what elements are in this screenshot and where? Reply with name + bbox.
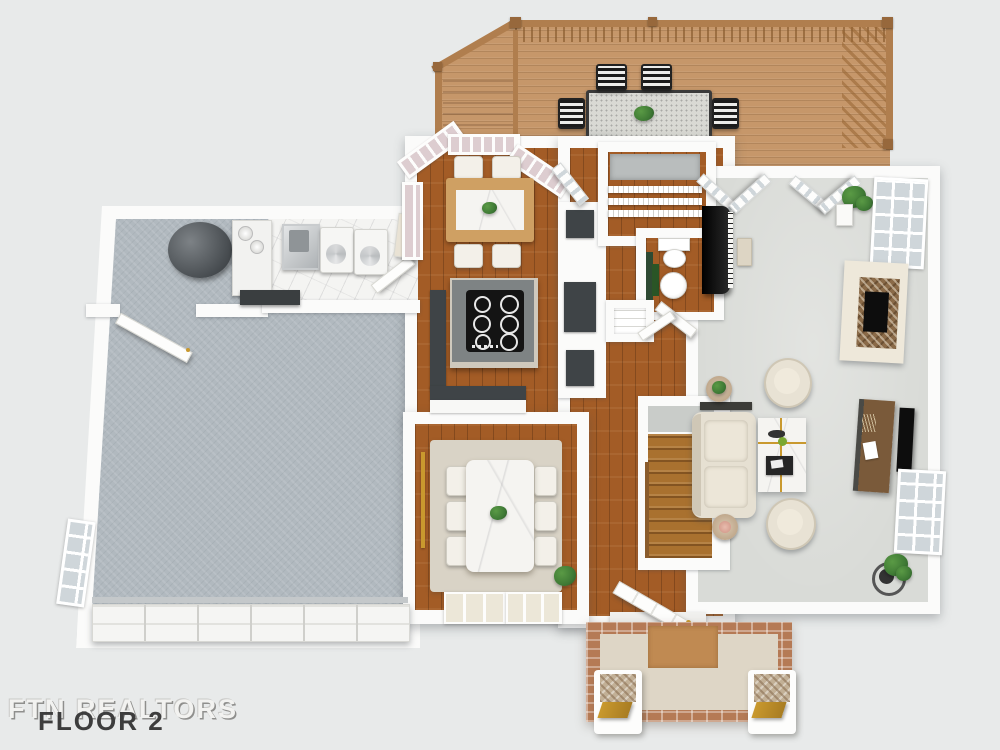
water-heater: [168, 222, 232, 278]
nook-chair: [454, 244, 483, 268]
deck-post: [882, 17, 893, 28]
burner: [474, 296, 491, 313]
burner: [473, 315, 491, 333]
deck-right-slat-shadow: [842, 27, 886, 148]
dining-window-seat: [444, 592, 506, 624]
paint-can: [238, 226, 253, 241]
garage-door: [92, 604, 410, 642]
pink-vase: [719, 521, 731, 533]
deck-post: [648, 17, 657, 26]
nook-chair: [454, 156, 483, 180]
cooktop-knobs: [472, 345, 498, 348]
deck-post: [883, 139, 893, 149]
door-handle: [186, 348, 190, 352]
dryer-lid: [360, 246, 380, 266]
coffee-table: [758, 418, 806, 492]
garage-divider-wall: [86, 304, 120, 317]
deck-railing-top: [515, 20, 887, 27]
pantry-upper-shelf: [610, 154, 700, 180]
sofa-cushion: [704, 420, 748, 462]
deck-post: [433, 62, 442, 71]
porch-column-post: [597, 702, 632, 718]
outdoor-chair: [558, 98, 585, 129]
burner: [500, 333, 518, 351]
outdoor-chair: [641, 64, 672, 91]
dining-chair: [534, 536, 557, 566]
nook-chair: [492, 244, 521, 268]
tall-cabinet: [566, 350, 594, 386]
dried-plant: [862, 414, 876, 432]
tall-cabinet: [566, 210, 594, 238]
porch-column-stone: [600, 674, 636, 702]
washer-lid: [326, 244, 346, 264]
living-window-lower: [894, 469, 946, 555]
powder-plant-wall: [652, 264, 659, 296]
piano-bench: [737, 238, 752, 266]
accent-chair-seat: [777, 509, 803, 535]
porch-column-stone: [754, 674, 790, 702]
refrigerator: [564, 282, 596, 332]
garage-door-track: [92, 597, 408, 603]
floor-lamp: [421, 452, 425, 548]
stair-handrail: [645, 462, 649, 558]
outdoor-chair: [712, 98, 739, 129]
kitchen-cabinet-face: [430, 400, 526, 413]
decor-apple: [778, 437, 787, 446]
burner: [500, 315, 519, 334]
pantry-wire-shelf: [608, 198, 702, 205]
nook-chair: [492, 156, 521, 180]
paint-can: [250, 240, 264, 254]
outdoor-chair: [596, 64, 627, 91]
sofa-cushion: [704, 466, 748, 508]
planter: [836, 204, 853, 226]
porch-mat: [648, 626, 718, 668]
pantry-wire-shelf: [608, 210, 702, 217]
piano: [702, 206, 730, 294]
burner: [500, 295, 519, 314]
dining-window-seat: [506, 592, 562, 624]
pedestal-sink: [660, 272, 687, 299]
kitchen-counter-bottom: [430, 386, 526, 400]
floorplan-render: FTN REALTORS FLOOR 2: [0, 0, 1000, 750]
firebox: [863, 291, 889, 332]
tray-cards: [771, 459, 784, 469]
piano-keys: [728, 212, 733, 288]
deck-stair-divider-rail: [513, 30, 518, 148]
kitchen-counter-left: [430, 290, 446, 390]
sofa-console-table: [700, 402, 752, 410]
accent-chair-seat: [774, 368, 800, 394]
deck-post: [510, 17, 521, 28]
console-card: [863, 441, 879, 460]
dining-chair: [534, 501, 557, 531]
toilet-bowl: [663, 249, 686, 268]
sofa-back: [692, 414, 701, 516]
nook-bay-window: [448, 134, 520, 155]
nook-bay-window: [402, 182, 423, 260]
deck-railing-balusters: [515, 27, 887, 42]
porch-column-post: [751, 702, 786, 718]
watermark-floor-label: FLOOR 2: [38, 706, 165, 737]
garage-divider-wall: [196, 304, 268, 317]
garage-shelf: [240, 290, 300, 305]
coffee-table-gold-inlay: [780, 418, 782, 492]
living-window-upper: [870, 177, 929, 270]
deck-railing-right: [886, 20, 893, 150]
pantry-wire-shelf: [608, 186, 702, 193]
dining-chair: [534, 466, 557, 496]
utility-sink-basin: [289, 230, 309, 252]
